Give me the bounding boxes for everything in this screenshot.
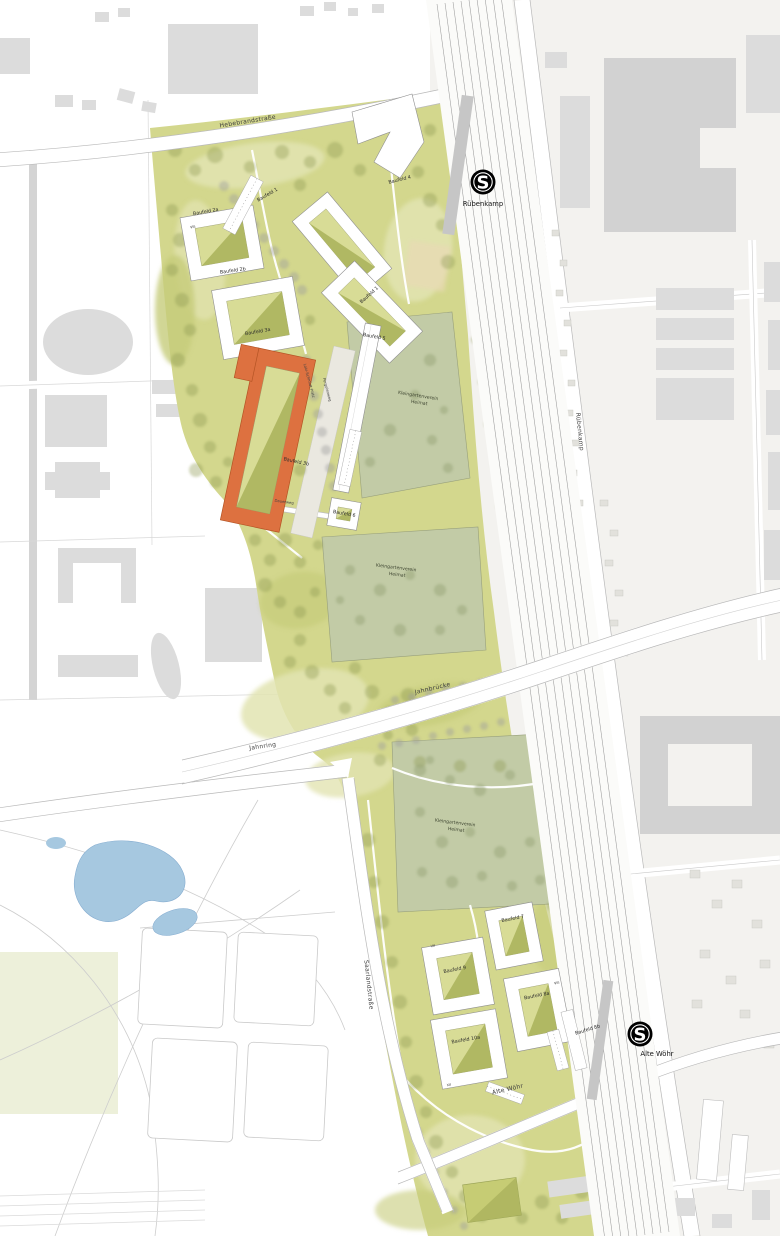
station-name-alte-woehr: Alte Wöhr: [640, 1050, 673, 1058]
sports-field: [138, 928, 228, 1028]
baufeld-10a-building: [430, 1009, 507, 1089]
baufeld-3a-building: [212, 276, 305, 359]
park-meadow: [0, 952, 118, 1114]
site-plan-map: Hebebrandstraße Rübenkamp Jahnbrücke Jah…: [0, 0, 780, 1236]
baufeld-9-building: [422, 937, 495, 1015]
storey-mark-bf10a: XII: [446, 1083, 451, 1088]
sports-field: [147, 1038, 237, 1142]
sbahn-logo-letter: S: [477, 173, 490, 194]
park-pond-small: [46, 837, 66, 849]
sports-field: [234, 932, 319, 1026]
storey-mark-bf9: VII: [430, 944, 435, 949]
sports-field: [244, 1042, 329, 1141]
plan-svg: Hebebrandstraße Rübenkamp Jahnbrücke Jah…: [0, 0, 780, 1236]
sbahn-logo-letter: S: [634, 1025, 647, 1046]
south-green-building: [463, 1177, 522, 1222]
station-name-ruebenkamp: Rübenkamp: [463, 200, 503, 208]
allotment-middle: [322, 527, 486, 662]
oval-building: [43, 309, 133, 375]
